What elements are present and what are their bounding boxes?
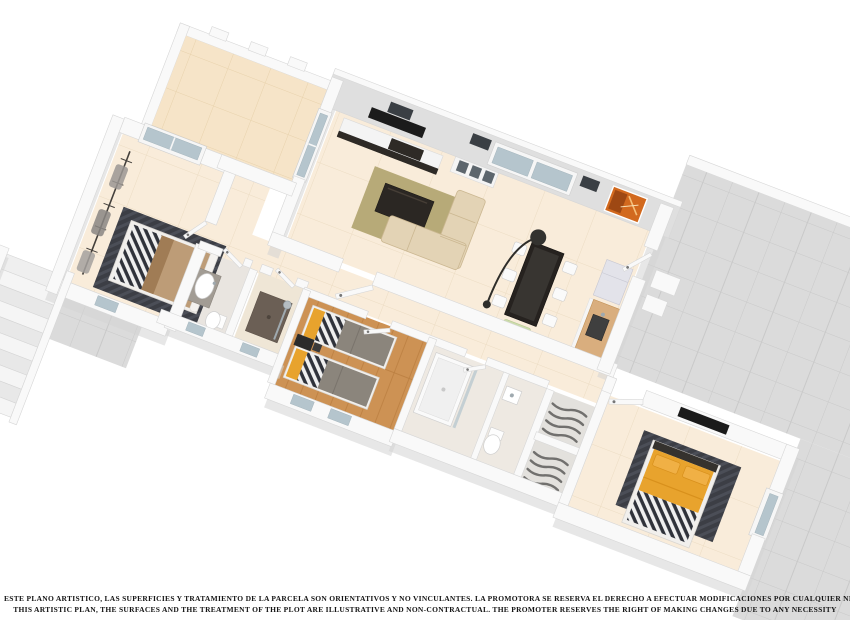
plan-root [0,0,850,620]
disclaimer: ESTE PLANO ARTISTICO, LAS SUPERFICIES Y … [4,593,846,616]
bedroom-3-door [609,399,643,405]
floorplan-page: ESTE PLANO ARTISTICO, LAS SUPERFICIES Y … [0,0,850,620]
disclaimer-line-en: THIS ARTISTIC PLAN, THE SURFACES AND THE… [4,604,846,615]
floorplan-3d-render [0,0,850,620]
disclaimer-line-es: ESTE PLANO ARTISTICO, LAS SUPERFICIES Y … [4,593,846,604]
